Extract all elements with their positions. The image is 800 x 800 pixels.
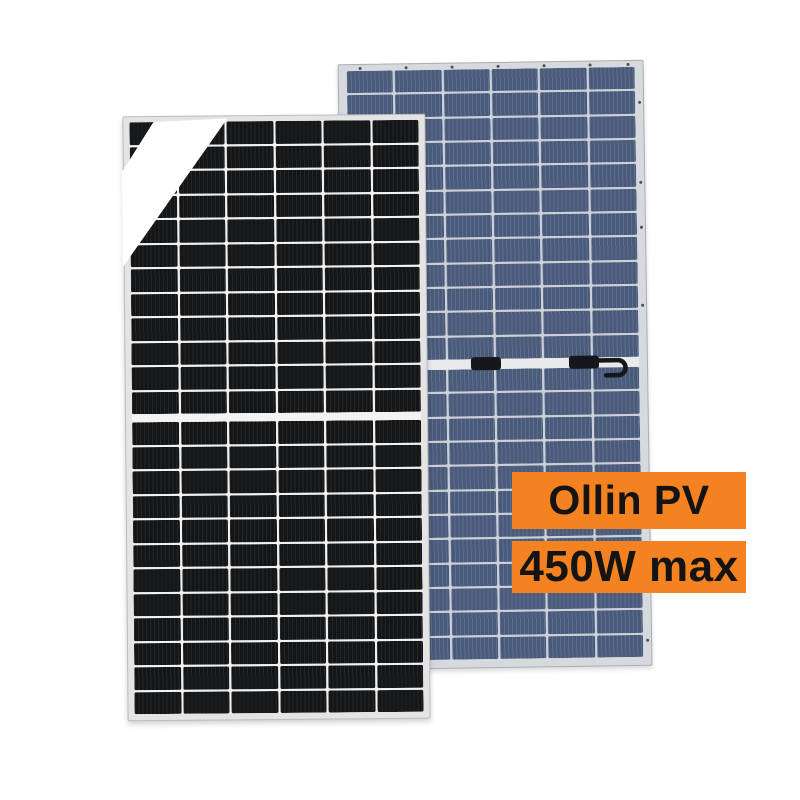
solar-cell: [180, 317, 227, 340]
solar-cell: [496, 336, 543, 359]
solar-cell: [590, 213, 637, 236]
solar-cell: [494, 263, 541, 286]
solar-cell: [373, 291, 420, 314]
solar-cell: [276, 292, 323, 315]
solar-cell: [589, 140, 636, 163]
solar-cell: [182, 642, 229, 665]
frame-hole-icon: [639, 181, 642, 184]
solar-cell: [443, 69, 490, 92]
solar-cell: [133, 569, 180, 592]
solar-cell: [179, 219, 226, 242]
solar-cell: [374, 365, 421, 388]
solar-cell: [132, 422, 179, 445]
solar-cell: [590, 189, 637, 212]
solar-cell: [376, 591, 423, 614]
solar-cell: [133, 520, 180, 543]
solar-cell: [131, 269, 178, 292]
solar-cell: [589, 116, 636, 139]
power-rating-label: 450W max: [512, 541, 746, 593]
solar-cell: [325, 267, 372, 290]
solar-cell: [376, 542, 423, 565]
solar-cell: [542, 238, 589, 261]
solar-cell: [227, 170, 274, 193]
solar-cell: [279, 641, 326, 664]
solar-cell: [229, 446, 276, 469]
solar-cell: [375, 444, 422, 467]
solar-cell: [446, 239, 493, 262]
solar-cell: [452, 637, 499, 660]
solar-cell: [492, 117, 539, 140]
solar-cell: [593, 391, 640, 414]
solar-cell: [131, 342, 178, 365]
solar-cell: [375, 420, 422, 443]
solar-cell: [325, 292, 372, 315]
solar-cell: [496, 393, 543, 416]
solar-cell: [324, 218, 371, 241]
solar-cell: [280, 690, 327, 713]
solar-cell: [182, 593, 229, 616]
solar-cell: [328, 592, 375, 615]
solar-cell: [497, 441, 544, 464]
solar-cell: [275, 121, 322, 144]
solar-cell: [545, 416, 592, 439]
solar-cell: [450, 539, 497, 562]
solar-cell: [278, 445, 325, 468]
solar-cell: [500, 612, 547, 635]
solar-cell: [327, 567, 374, 590]
solar-cell: [276, 243, 323, 266]
solar-cell: [593, 416, 640, 439]
solar-cell: [180, 342, 227, 365]
solar-cell: [374, 389, 421, 412]
solar-cell: [277, 366, 324, 389]
solar-cell: [229, 391, 276, 414]
cable-loop-icon: [594, 355, 640, 380]
solar-cell: [324, 145, 371, 168]
solar-cell: [326, 365, 373, 388]
solar-cell: [543, 262, 590, 285]
panel-cell-area: [129, 120, 423, 714]
brand-label: Ollin PV: [512, 472, 746, 529]
frame-hole-icon: [641, 304, 644, 307]
solar-cell: [231, 666, 278, 689]
solar-panel-black: [122, 114, 430, 722]
frame-hole-icon: [638, 101, 641, 104]
solar-cell: [445, 191, 492, 214]
solar-cell: [231, 690, 278, 713]
solar-cell: [592, 310, 639, 333]
solar-cell: [445, 215, 492, 238]
solar-cell: [182, 568, 229, 591]
frame-screw-icon: [627, 63, 630, 66]
solar-cell: [180, 391, 227, 414]
solar-cell: [495, 287, 542, 310]
junction-connector: [471, 357, 501, 370]
solar-cell: [130, 244, 177, 267]
solar-cell: [594, 440, 641, 463]
solar-cell: [492, 68, 539, 91]
solar-cell: [495, 312, 542, 335]
solar-cell: [327, 494, 374, 517]
solar-cell: [227, 195, 274, 218]
frame-hole-icon: [640, 226, 643, 229]
frame-screw-icon: [451, 66, 454, 69]
solar-cell: [134, 618, 181, 641]
solar-cell: [227, 146, 274, 169]
solar-cell: [372, 120, 419, 143]
solar-cell: [276, 268, 323, 291]
solar-cell: [179, 195, 226, 218]
solar-cell: [133, 495, 180, 518]
solar-cell: [451, 588, 498, 611]
solar-cell: [451, 612, 498, 635]
solar-cell: [183, 691, 230, 714]
solar-cell: [228, 268, 275, 291]
solar-cell: [543, 287, 590, 310]
solar-cell: [279, 568, 326, 591]
solar-cell: [448, 418, 495, 441]
solar-cell: [446, 264, 493, 287]
solar-cell: [494, 239, 541, 262]
solar-cell: [493, 166, 540, 189]
solar-cell: [544, 368, 591, 391]
solar-cell: [542, 214, 589, 237]
solar-cell: [541, 116, 588, 139]
solar-cell: [496, 368, 543, 391]
solar-cell: [591, 237, 638, 260]
solar-cell: [374, 340, 421, 363]
solar-cell: [588, 67, 635, 90]
solar-cell: [451, 564, 498, 587]
solar-cell: [374, 316, 421, 339]
solar-cell: [347, 70, 394, 93]
solar-cell: [449, 442, 496, 465]
solar-cell: [132, 391, 179, 414]
solar-cell: [275, 170, 322, 193]
solar-cell: [230, 495, 277, 518]
solar-cell: [377, 665, 424, 688]
frame-screw-icon: [543, 64, 546, 67]
solar-cell: [276, 219, 323, 242]
solar-cell: [327, 518, 374, 541]
solar-cell: [134, 667, 181, 690]
solar-cell: [448, 369, 495, 392]
solar-cell: [589, 91, 636, 114]
solar-cell: [227, 244, 274, 267]
cell-grid-bottom-half: [132, 420, 424, 715]
solar-cell: [132, 446, 179, 469]
solar-cell: [373, 193, 420, 216]
solar-cell: [591, 262, 638, 285]
solar-cell: [541, 165, 588, 188]
solar-cell: [323, 120, 370, 143]
solar-cell: [278, 421, 325, 444]
solar-cell: [131, 318, 178, 341]
solar-cell: [540, 68, 587, 91]
solar-cell: [230, 568, 277, 591]
solar-cell: [372, 144, 419, 167]
solar-cell: [395, 70, 442, 93]
solar-cell: [180, 366, 227, 389]
solar-cell: [447, 288, 494, 311]
solar-cell: [544, 311, 591, 334]
solar-cell: [497, 417, 544, 440]
solar-cell: [133, 544, 180, 567]
solar-cell: [328, 665, 375, 688]
solar-cell: [278, 494, 325, 517]
solar-cell: [444, 142, 491, 165]
solar-cell: [592, 286, 639, 309]
solar-cell: [444, 118, 491, 141]
solar-cell: [181, 519, 228, 542]
solar-cell: [545, 441, 592, 464]
solar-cell: [375, 469, 422, 492]
solar-cell: [277, 317, 324, 340]
solar-cell: [324, 243, 371, 266]
solar-cell: [179, 268, 226, 291]
solar-cell: [449, 466, 496, 489]
solar-cell: [326, 420, 373, 443]
solar-cell: [131, 293, 178, 316]
solar-cell: [596, 610, 643, 633]
solar-cell: [278, 519, 325, 542]
solar-cell: [540, 92, 587, 115]
solar-cell: [277, 341, 324, 364]
solar-cell: [372, 169, 419, 192]
solar-cell: [181, 421, 228, 444]
solar-cell: [545, 392, 592, 415]
solar-cell: [373, 242, 420, 265]
solar-cell: [230, 519, 277, 542]
solar-cell: [228, 293, 275, 316]
solar-cell: [134, 691, 181, 714]
solar-cell: [376, 616, 423, 639]
solar-cell: [326, 390, 373, 413]
solar-cell: [275, 145, 322, 168]
solar-cell: [325, 316, 372, 339]
solar-cell: [228, 342, 275, 365]
solar-cell: [327, 543, 374, 566]
solar-cell: [493, 141, 540, 164]
solar-cell: [228, 317, 275, 340]
solar-cell: [229, 421, 276, 444]
solar-cell: [493, 190, 540, 213]
solar-cell: [132, 367, 179, 390]
solar-cell: [375, 518, 422, 541]
solar-cell: [376, 567, 423, 590]
solar-cell: [492, 93, 539, 116]
solar-cell: [280, 666, 327, 689]
solar-cell: [179, 244, 226, 267]
solar-cell: [376, 640, 423, 663]
solar-cell: [324, 169, 371, 192]
solar-cell: [231, 617, 278, 640]
solar-cell: [324, 194, 371, 217]
frame-screw-icon: [405, 66, 408, 69]
solar-cell: [278, 470, 325, 493]
solar-cell: [375, 493, 422, 516]
solar-cell: [326, 469, 373, 492]
solar-cell: [373, 267, 420, 290]
solar-cell: [590, 164, 637, 187]
solar-cell: [181, 470, 228, 493]
solar-cell: [542, 189, 589, 212]
solar-cell: [447, 312, 494, 335]
solar-cell: [134, 642, 181, 665]
solar-cell: [444, 93, 491, 116]
solar-cell: [183, 666, 230, 689]
solar-cell: [179, 293, 226, 316]
solar-cell: [182, 617, 229, 640]
solar-cell: [326, 445, 373, 468]
solar-cell: [277, 390, 324, 413]
solar-cell: [276, 194, 323, 217]
solar-cell: [229, 470, 276, 493]
frame-screw-icon: [497, 65, 500, 68]
solar-cell: [132, 471, 179, 494]
solar-cell: [448, 393, 495, 416]
solar-cell: [134, 593, 181, 616]
solar-cell: [231, 642, 278, 665]
solar-cell: [279, 617, 326, 640]
solar-cell: [279, 543, 326, 566]
solar-cell: [377, 689, 424, 712]
frame-screw-icon: [359, 67, 362, 70]
solar-cell: [182, 544, 229, 567]
solar-cell: [328, 641, 375, 664]
solar-cell: [548, 611, 595, 634]
solar-cell: [450, 491, 497, 514]
solar-cell: [230, 544, 277, 567]
frame-screw-icon: [589, 64, 592, 67]
solar-cell: [231, 593, 278, 616]
solar-cell: [541, 141, 588, 164]
solar-cell: [229, 366, 276, 389]
solar-cell: [226, 121, 273, 144]
solar-cell: [500, 636, 547, 659]
solar-cell: [181, 495, 228, 518]
solar-cell: [181, 446, 228, 469]
solar-cell: [445, 166, 492, 189]
solar-cell: [328, 616, 375, 639]
solar-cell: [494, 214, 541, 237]
frame-hole-icon: [646, 639, 649, 642]
solar-cell: [373, 218, 420, 241]
solar-cell: [227, 219, 274, 242]
solar-cell: [597, 634, 644, 657]
solar-cell: [450, 515, 497, 538]
solar-cell: [328, 690, 375, 713]
solar-cell: [548, 635, 595, 658]
solar-cell: [325, 341, 372, 364]
solar-cell: [279, 592, 326, 615]
product-image: Ollin PV 450W max: [0, 0, 800, 800]
